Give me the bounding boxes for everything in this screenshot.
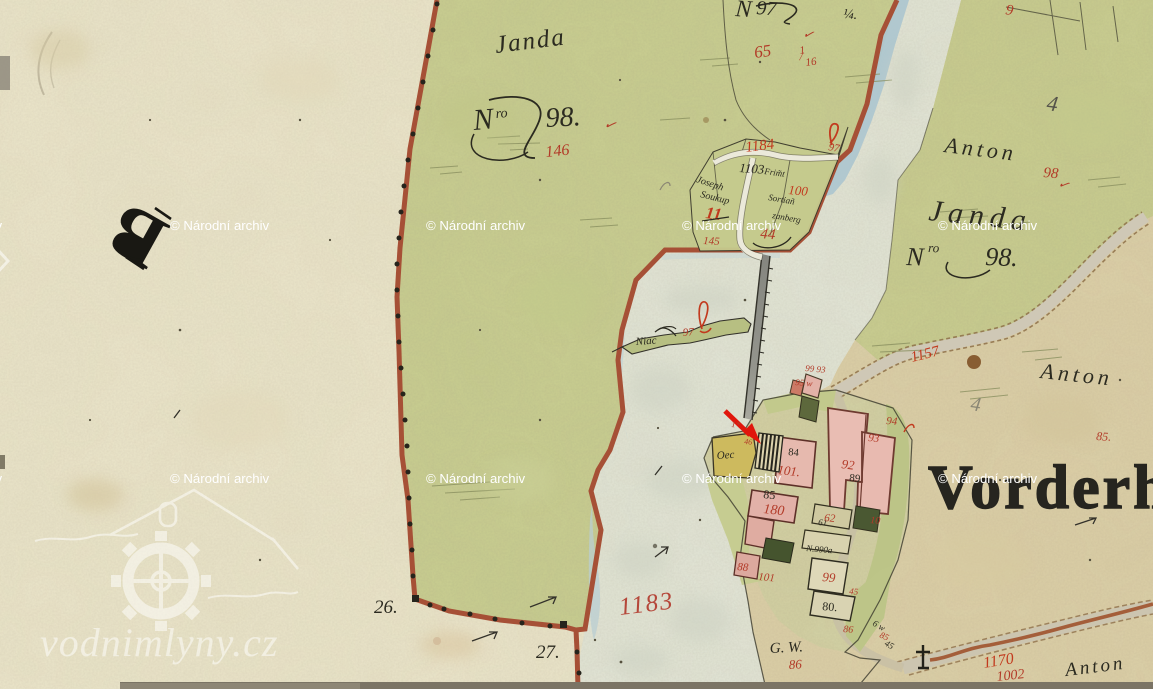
svg-text:99 93: 99 93 xyxy=(805,363,827,375)
svg-text:Oec: Oec xyxy=(716,449,735,462)
svg-text:Niac: Niac xyxy=(634,335,657,348)
svg-text:G. W.: G. W. xyxy=(769,639,803,657)
svg-text:84: 84 xyxy=(788,447,800,459)
svg-text:26.: 26. xyxy=(374,597,398,618)
svg-text:98.: 98. xyxy=(985,242,1018,272)
svg-text:93: 93 xyxy=(868,432,881,445)
svg-text:vodnimlyny.cz: vodnimlyny.cz xyxy=(40,620,279,665)
svg-text:16: 16 xyxy=(805,55,818,68)
svg-text:¼.: ¼. xyxy=(843,7,858,23)
svg-text:ro: ro xyxy=(928,240,940,255)
svg-text:92: 92 xyxy=(841,456,856,473)
svg-text:© Národní archiv: © Národní archiv xyxy=(938,218,1038,233)
svg-text:88: 88 xyxy=(737,561,750,574)
svg-text:N: N xyxy=(905,242,926,272)
svg-text:85: 85 xyxy=(763,487,776,502)
svg-text:180: 180 xyxy=(763,502,785,519)
svg-text:27.: 27. xyxy=(536,642,560,663)
svg-text:62: 62 xyxy=(824,512,837,525)
svg-text:145: 145 xyxy=(703,235,721,248)
svg-text:85.: 85. xyxy=(1096,429,1112,444)
svg-text:86: 86 xyxy=(843,624,854,636)
svg-text:© Národní archiv: © Národní archiv xyxy=(170,218,270,233)
svg-text:© Národní archiv: © Národní archiv xyxy=(938,471,1038,486)
svg-text:1103: 1103 xyxy=(739,160,766,177)
svg-text:86: 86 xyxy=(788,656,802,672)
svg-text:© Národní archiv: © Národní archiv xyxy=(682,471,782,486)
svg-text:© Národní archiv: © Národní archiv xyxy=(170,471,270,486)
svg-text:46: 46 xyxy=(744,437,753,447)
svg-text:98.: 98. xyxy=(545,101,582,134)
svg-text:© Národní archiv: © Národní archiv xyxy=(426,218,526,233)
svg-text:Vorderh: Vorderh xyxy=(928,454,1153,522)
svg-text:99: 99 xyxy=(822,569,837,585)
svg-text:65: 65 xyxy=(753,41,772,62)
svg-text:97: 97 xyxy=(682,326,694,339)
svg-text:45: 45 xyxy=(849,586,859,597)
svg-text:89: 89 xyxy=(849,472,862,485)
svg-text:10: 10 xyxy=(870,515,881,527)
svg-text:98: 98 xyxy=(1043,165,1060,182)
svg-text:95 w: 95 w xyxy=(795,377,813,388)
svg-text:80.: 80. xyxy=(822,599,838,614)
svg-text:© Národní archiv: © Národní archiv xyxy=(682,218,782,233)
svg-text:94: 94 xyxy=(886,415,899,428)
svg-text:1*: 1* xyxy=(731,419,741,430)
svg-text:ro: ro xyxy=(495,106,508,122)
svg-text:146: 146 xyxy=(545,142,571,161)
svg-text:© Národní archiv: © Národní archiv xyxy=(426,471,526,486)
svg-text:100: 100 xyxy=(788,182,809,199)
svg-text:101: 101 xyxy=(758,571,775,584)
svg-text:1002: 1002 xyxy=(996,667,1025,685)
